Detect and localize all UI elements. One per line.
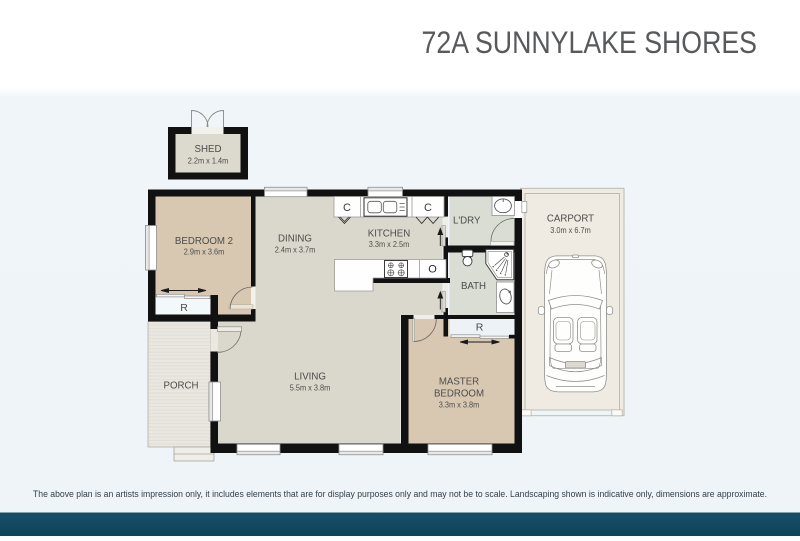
svg-text:LIVING: LIVING	[294, 372, 326, 383]
svg-text:CARPORT: CARPORT	[547, 214, 594, 225]
svg-text:SHED: SHED	[195, 144, 222, 155]
svg-text:BEDROOM: BEDROOM	[434, 389, 484, 400]
svg-text:BEDROOM 2: BEDROOM 2	[175, 236, 233, 247]
svg-text:C: C	[424, 202, 432, 214]
svg-text:O: O	[428, 264, 437, 276]
svg-text:The above plan is an artists i: The above plan is an artists impression …	[33, 489, 767, 500]
svg-text:PORCH: PORCH	[164, 380, 199, 391]
svg-text:BATH: BATH	[461, 281, 486, 292]
svg-text:3.0m x 6.7m: 3.0m x 6.7m	[550, 226, 591, 235]
svg-text:DINING: DINING	[278, 234, 312, 245]
svg-text:5.5m x 3.8m: 5.5m x 3.8m	[290, 383, 331, 392]
svg-text:72A SUNNYLAKE SHORES: 72A SUNNYLAKE SHORES	[422, 24, 758, 60]
svg-text:R: R	[180, 302, 188, 314]
svg-text:2.2m x 1.4m: 2.2m x 1.4m	[188, 157, 229, 166]
svg-text:KITCHEN: KITCHEN	[368, 229, 411, 240]
svg-text:R: R	[476, 322, 484, 334]
svg-text:2.4m x 3.7m: 2.4m x 3.7m	[275, 245, 316, 254]
svg-text:3.3m x 2.5m: 3.3m x 2.5m	[369, 240, 410, 249]
svg-text:MASTER: MASTER	[439, 377, 479, 388]
svg-text:L'DRY: L'DRY	[453, 216, 481, 227]
svg-text:C: C	[343, 202, 351, 214]
svg-text:3.3m x 3.8m: 3.3m x 3.8m	[439, 400, 480, 409]
svg-text:2.9m x 3.6m: 2.9m x 3.6m	[184, 247, 225, 256]
